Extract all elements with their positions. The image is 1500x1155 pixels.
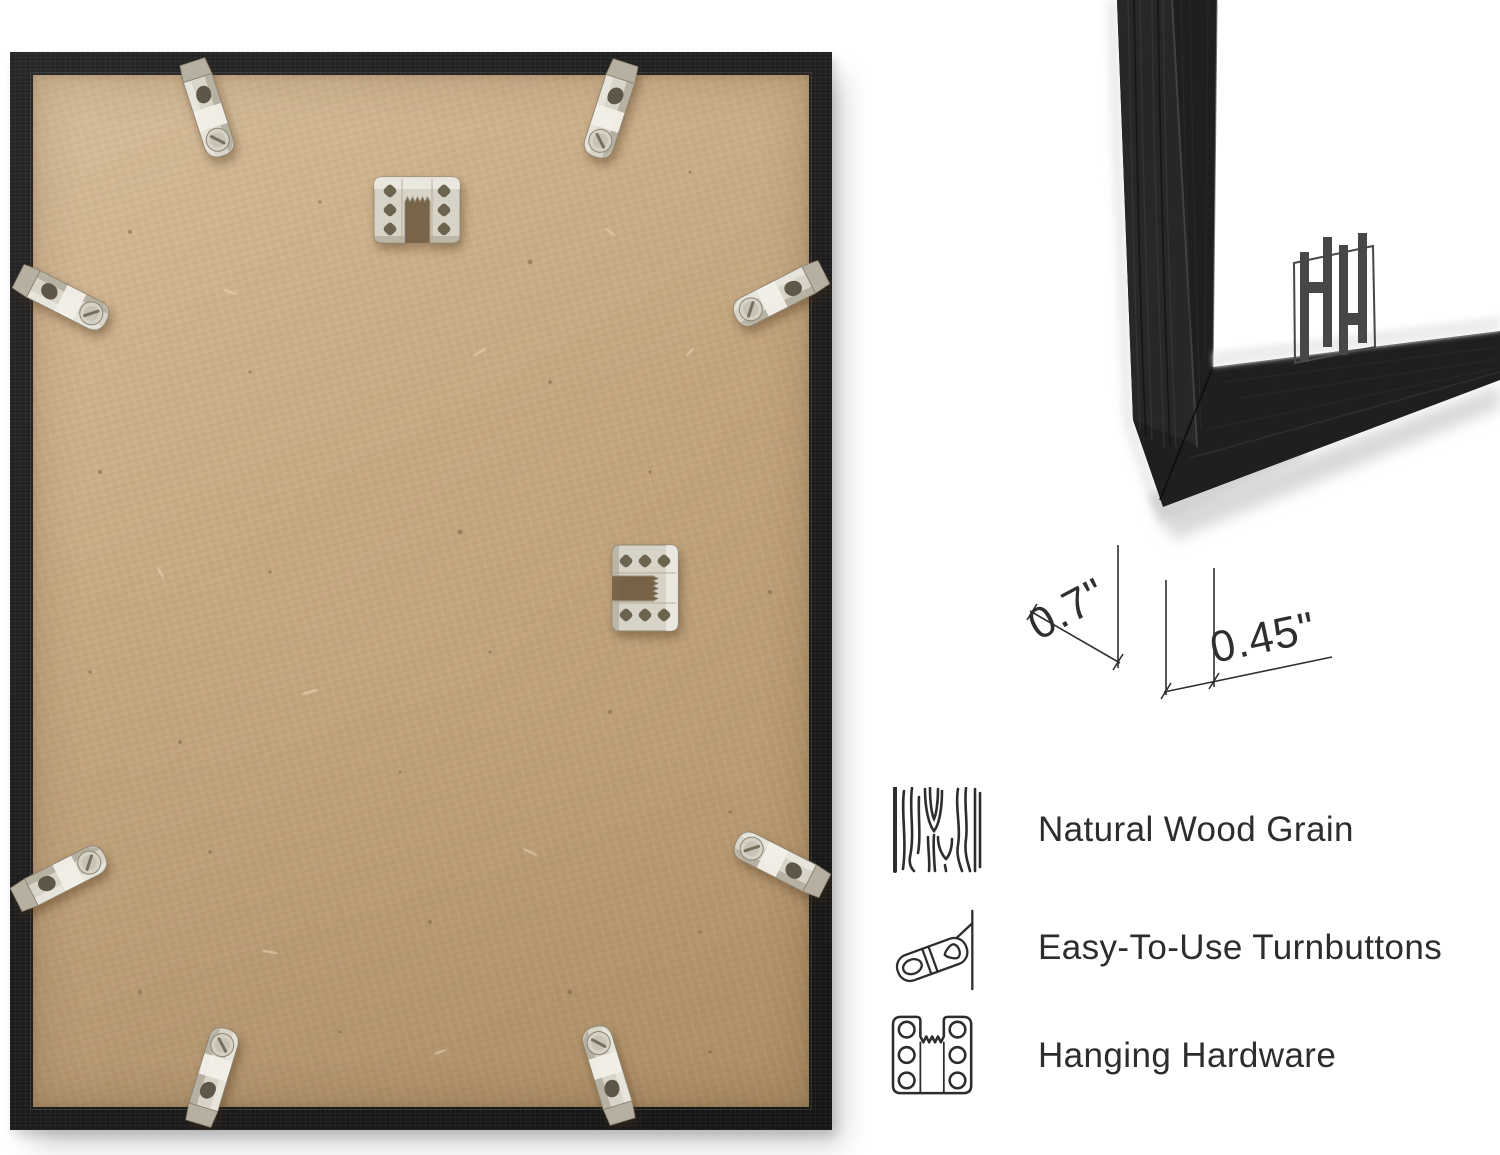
feature-wood-grain: Natural Wood Grain [888, 787, 1354, 873]
turnbutton-right-upper [729, 259, 831, 331]
turnbutton-top-right [581, 58, 640, 161]
turnbutton-bottom-left [184, 1024, 242, 1127]
mdf-fibers [155, 227, 695, 1056]
feature-label-wood-grain: Natural Wood Grain [1038, 810, 1354, 850]
turnbutton-top-left [178, 57, 237, 160]
wood-grain-icon [888, 787, 984, 873]
product-collage: 0.7" 0.45" Natural Wood Grain [0, 0, 1500, 1155]
turnbutton-left-upper [11, 263, 113, 335]
frame-corner-closeup: 0.7" 0.45" [1000, 0, 1500, 710]
turnbutton-bottom-right [579, 1022, 637, 1125]
hanging-hardware-icon [888, 1013, 984, 1099]
sawtooth-hanger-top [374, 177, 460, 243]
turnbutton-right-lower [730, 828, 832, 900]
hardware-layer [10, 52, 832, 1130]
feature-turnbuttons: Easy-To-Use Turnbuttons [888, 905, 1442, 991]
depth-measurement: 0.7" [1020, 569, 1114, 650]
feature-label-hanging-hardware: Hanging Hardware [1038, 1036, 1336, 1076]
sawtooth-hanger-side [612, 545, 678, 631]
frame-back-photo [10, 52, 832, 1130]
feature-label-turnbuttons: Easy-To-Use Turnbuttons [1038, 928, 1442, 968]
feature-hanging-hardware: Hanging Hardware [888, 1013, 1336, 1099]
turnbutton-left-lower [10, 842, 111, 914]
turnbutton-icon [888, 905, 984, 991]
